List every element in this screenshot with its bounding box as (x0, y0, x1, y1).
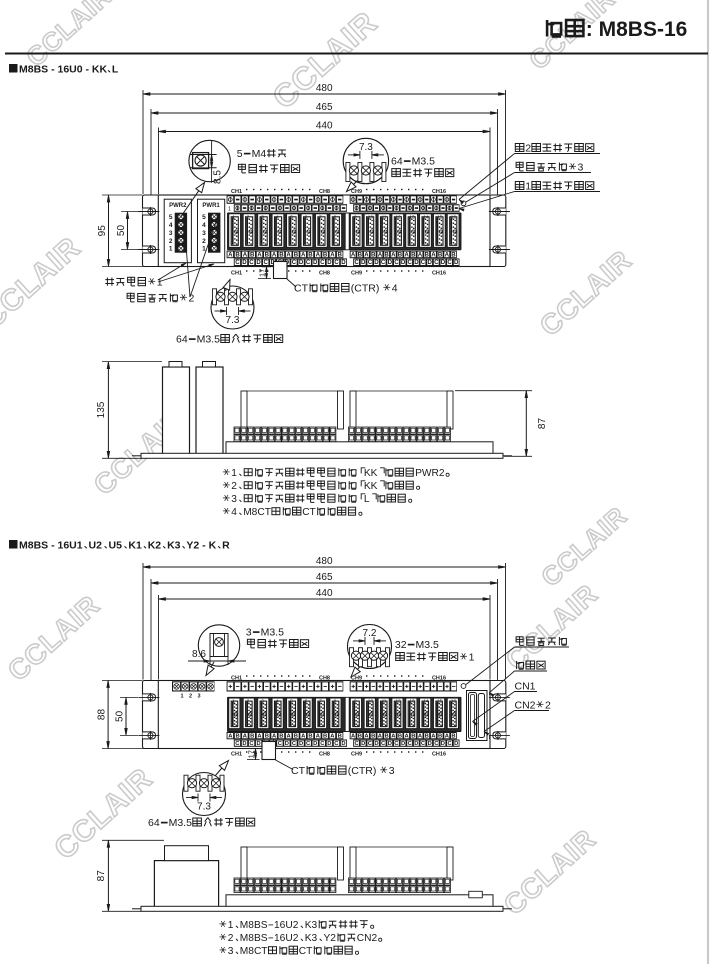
svg-text:D: D (341, 259, 346, 266)
svg-text:A: A (228, 251, 233, 258)
svg-text:CN2: CN2 (357, 933, 378, 944)
svg-text:2: 2 (525, 143, 531, 155)
svg-text:A: A (286, 251, 291, 258)
svg-text:5: 5 (169, 214, 173, 221)
svg-text:B: B (411, 251, 416, 258)
svg-text:M8CT: M8CT (243, 507, 271, 518)
svg-text:Y2 - K: Y2 - K (186, 540, 216, 552)
svg-text:B: B (385, 733, 389, 739)
svg-text:1: 1 (231, 468, 237, 479)
svg-text:D: D (327, 259, 332, 266)
svg-text:C: C (447, 259, 452, 266)
svg-text:M8BS: M8BS (240, 920, 268, 931)
svg-text:L: L (364, 494, 370, 505)
svg-text:PWR1: PWR1 (202, 203, 220, 209)
svg-text:3: 3 (261, 214, 264, 219)
svg-text:M3.5: M3.5 (412, 156, 436, 168)
svg-text:480: 480 (316, 556, 333, 567)
svg-text:2: 2 (247, 699, 250, 704)
svg-text:2: 2 (169, 238, 173, 245)
svg-text:CH16: CH16 (432, 752, 446, 758)
svg-text:D: D (242, 259, 247, 266)
svg-text:A: A (316, 251, 321, 258)
svg-text:K1: K1 (128, 540, 142, 552)
svg-text:15: 15 (437, 214, 443, 219)
svg-text:CH1: CH1 (231, 752, 242, 758)
svg-text:C: C (394, 259, 399, 266)
svg-text:D: D (361, 741, 365, 747)
svg-text:2: 2 (202, 238, 206, 245)
svg-text:B: B (250, 251, 255, 258)
svg-text:13: 13 (409, 214, 415, 219)
svg-text:C: C (235, 259, 240, 266)
svg-text:440: 440 (316, 588, 333, 599)
svg-text:3: 3 (202, 230, 206, 237)
svg-text:C: C (263, 259, 268, 266)
svg-text:1: 1 (525, 181, 531, 193)
svg-text:A: A (301, 251, 306, 258)
svg-text:9: 9 (354, 214, 357, 219)
svg-text:KK: KK (364, 468, 378, 479)
svg-text:B: B (265, 251, 270, 258)
svg-text:D: D (414, 259, 419, 266)
svg-text:M8BS - 16U0 - KK: M8BS - 16U0 - KK (19, 64, 108, 76)
svg-text:B: B (438, 251, 443, 258)
svg-text:A: A (378, 251, 383, 258)
svg-text:K2: K2 (148, 540, 162, 552)
svg-text:D: D (427, 259, 432, 266)
svg-text:M8BS: M8BS (240, 933, 268, 944)
svg-text:3: 3 (197, 694, 200, 700)
svg-text:A: A (272, 251, 277, 258)
svg-text:PWR2: PWR2 (415, 468, 445, 479)
svg-text:15: 15 (437, 699, 443, 704)
svg-text:8.5: 8.5 (213, 170, 224, 184)
svg-text:1: 1 (180, 694, 183, 700)
svg-text:A: A (418, 251, 423, 258)
svg-text:135: 135 (96, 401, 107, 418)
svg-text:CN2: CN2 (515, 700, 536, 712)
svg-text:CH1: CH1 (231, 189, 242, 195)
svg-text:C: C (320, 259, 325, 266)
svg-text:7.3: 7.3 (359, 142, 373, 153)
svg-text:D: D (313, 741, 317, 747)
svg-text:C: C (421, 259, 426, 266)
svg-text:D: D (401, 741, 405, 747)
svg-text:A: A (404, 251, 409, 258)
svg-text:17: 17 (257, 269, 266, 277)
svg-text:465: 465 (316, 102, 333, 113)
svg-text:B: B (323, 733, 327, 739)
svg-text:D: D (257, 741, 261, 747)
svg-text:10: 10 (368, 699, 374, 704)
svg-text:D: D (401, 259, 406, 266)
svg-text:6: 6 (305, 214, 308, 219)
svg-text:M8BS - 16U1: M8BS - 16U1 (19, 540, 83, 552)
svg-text:12: 12 (396, 699, 402, 704)
svg-text:1: 1 (157, 277, 163, 289)
svg-text:17: 17 (246, 750, 255, 758)
svg-text:1: 1 (228, 207, 231, 213)
svg-text:87: 87 (537, 418, 548, 430)
svg-text:7: 7 (319, 214, 322, 219)
svg-text:B: B (236, 733, 240, 739)
svg-text:4: 4 (169, 222, 173, 229)
svg-text:CH8: CH8 (319, 271, 330, 277)
svg-text:2: 2 (189, 694, 192, 700)
svg-text:A: A (364, 251, 369, 258)
svg-text:CT: CT (299, 946, 313, 957)
svg-text:A: A (445, 251, 450, 258)
svg-text:D: D (299, 741, 303, 747)
svg-text:16U2: 16U2 (274, 920, 299, 931)
svg-text:B: B (337, 251, 342, 258)
svg-text:B: B (398, 251, 403, 258)
svg-text:1: 1 (169, 246, 173, 253)
svg-text:C: C (334, 259, 339, 266)
svg-text:M3.5: M3.5 (169, 817, 193, 829)
svg-text:2: 2 (247, 214, 250, 219)
svg-text:CT: CT (302, 507, 316, 518)
svg-text:4: 4 (276, 699, 279, 704)
svg-text:B: B (451, 733, 455, 739)
svg-text:D: D (361, 259, 366, 266)
svg-text:3: 3 (389, 765, 395, 777)
svg-text:7.3: 7.3 (197, 802, 211, 813)
svg-text:B: B (279, 251, 284, 258)
svg-text:D: D (299, 259, 304, 266)
svg-text:5: 5 (290, 699, 293, 704)
svg-text:A: A (330, 251, 335, 258)
svg-text:D: D (441, 741, 445, 747)
svg-text:CH16: CH16 (432, 271, 446, 277)
svg-text:A: A (431, 251, 436, 258)
svg-text:3: 3 (261, 699, 264, 704)
svg-text:8: 8 (334, 699, 337, 704)
svg-text:B: B (323, 251, 328, 258)
svg-text:D: D (441, 259, 446, 266)
svg-text:B: B (371, 733, 375, 739)
svg-text:3: 3 (231, 494, 237, 505)
svg-text:U5: U5 (109, 540, 123, 552)
svg-text:C: C (249, 259, 254, 266)
svg-text:3: 3 (578, 162, 584, 174)
svg-text:1: 1 (469, 652, 475, 664)
svg-text:440: 440 (316, 121, 333, 132)
svg-text:D: D (313, 259, 318, 266)
svg-text:CN1: CN1 (515, 681, 536, 693)
svg-text:16: 16 (451, 214, 457, 219)
svg-text:C: C (292, 259, 297, 266)
svg-text:B: B (411, 733, 415, 739)
svg-text:B: B (425, 733, 429, 739)
svg-text:D: D (374, 741, 378, 747)
svg-text:B: B (308, 733, 312, 739)
svg-text:C: C (381, 259, 386, 266)
svg-text:D: D (388, 741, 392, 747)
svg-text:16: 16 (451, 699, 457, 704)
svg-text:U2: U2 (89, 540, 103, 552)
svg-text:CH9: CH9 (351, 271, 362, 277)
svg-text:D: D (256, 259, 261, 266)
svg-text:B: B (384, 251, 389, 258)
svg-text:A: A (351, 251, 356, 258)
svg-text:B: B (451, 251, 456, 258)
svg-text:R: R (222, 540, 230, 552)
svg-text:D: D (374, 259, 379, 266)
svg-text:64: 64 (176, 334, 188, 346)
svg-text:4: 4 (202, 222, 206, 229)
svg-text:3: 3 (228, 946, 234, 957)
svg-text:M8CT: M8CT (240, 946, 268, 957)
svg-text:M3.5: M3.5 (261, 627, 285, 639)
svg-text:480: 480 (316, 83, 333, 94)
svg-text:K3: K3 (305, 920, 318, 931)
svg-text:CT: CT (291, 765, 306, 777)
svg-text:B: B (279, 733, 283, 739)
svg-text:B: B (338, 733, 342, 739)
svg-text:50: 50 (116, 225, 127, 237)
svg-text:8: 8 (334, 214, 337, 219)
svg-text:3: 3 (246, 627, 252, 639)
svg-text:CH9: CH9 (351, 752, 362, 758)
svg-text:2: 2 (228, 933, 234, 944)
svg-text:B: B (235, 251, 240, 258)
svg-text:A: A (243, 251, 248, 258)
svg-text:B: B (358, 251, 363, 258)
svg-text:2: 2 (545, 700, 551, 712)
svg-text:B: B (294, 733, 298, 739)
svg-text:D: D (428, 741, 432, 747)
svg-text:14: 14 (423, 214, 429, 219)
svg-text:B: B (265, 733, 269, 739)
svg-text:7.3: 7.3 (226, 315, 240, 326)
svg-text:32: 32 (395, 639, 407, 651)
svg-text:5: 5 (290, 214, 293, 219)
svg-text:4: 4 (231, 507, 237, 518)
svg-text:CT: CT (294, 283, 309, 295)
svg-text:88: 88 (97, 709, 108, 721)
svg-text:1: 1 (228, 920, 234, 931)
svg-text:7: 7 (319, 699, 322, 704)
svg-text:(CTR): (CTR) (351, 283, 380, 295)
svg-text:K3: K3 (305, 933, 318, 944)
svg-text:CH16: CH16 (432, 189, 446, 195)
svg-text:11: 11 (382, 699, 387, 704)
svg-text:8.6: 8.6 (192, 649, 206, 660)
svg-text:: M8BS-16: : M8BS-16 (586, 18, 688, 41)
svg-text:2: 2 (231, 481, 237, 492)
svg-text:9: 9 (354, 699, 357, 704)
svg-text:465: 465 (316, 572, 333, 583)
svg-text:4: 4 (392, 283, 398, 295)
svg-text:C: C (354, 259, 359, 266)
svg-text:10: 10 (368, 214, 374, 219)
svg-text:D: D (327, 741, 331, 747)
svg-text:A: A (391, 251, 396, 258)
svg-text:Y2: Y2 (324, 933, 337, 944)
svg-text:D: D (414, 741, 418, 747)
svg-text:D: D (341, 741, 345, 747)
svg-text:M3.5: M3.5 (197, 334, 221, 346)
svg-text:KK: KK (364, 481, 378, 492)
svg-text:1: 1 (232, 699, 235, 704)
svg-text:B: B (438, 733, 442, 739)
svg-text:14: 14 (423, 699, 429, 704)
svg-text:M4: M4 (252, 148, 267, 160)
svg-text:4: 4 (276, 214, 279, 219)
svg-text:CH1: CH1 (231, 271, 242, 277)
svg-text:B: B (250, 733, 254, 739)
svg-text:1: 1 (232, 214, 235, 219)
svg-text:6: 6 (305, 699, 308, 704)
svg-text:(CTR): (CTR) (348, 765, 377, 777)
svg-text:CH8: CH8 (319, 676, 330, 682)
svg-text:D: D (388, 259, 393, 266)
svg-text:B: B (358, 733, 362, 739)
svg-text:12: 12 (396, 214, 402, 219)
svg-text:C: C (407, 259, 412, 266)
svg-text:CH8: CH8 (319, 752, 330, 758)
svg-text:5: 5 (237, 148, 243, 160)
svg-text:B: B (424, 251, 429, 258)
svg-text:B: B (371, 251, 376, 258)
svg-text:C: C (434, 259, 439, 266)
svg-text:C: C (306, 259, 311, 266)
svg-text:D: D (454, 259, 459, 266)
svg-text:13: 13 (409, 699, 415, 704)
svg-text:M3.5: M3.5 (416, 639, 440, 651)
svg-text:D: D (242, 741, 246, 747)
svg-text:16U2: 16U2 (274, 933, 299, 944)
svg-text:B: B (398, 733, 402, 739)
svg-text:PWR2: PWR2 (169, 203, 187, 209)
svg-text:64: 64 (391, 156, 403, 168)
svg-text:B: B (294, 251, 299, 258)
svg-text:C: C (368, 259, 373, 266)
svg-text:11: 11 (382, 214, 387, 219)
svg-text:CH8: CH8 (319, 189, 330, 195)
svg-text:L: L (112, 64, 119, 76)
svg-text:D: D (285, 741, 289, 747)
svg-text:A: A (257, 251, 262, 258)
svg-text:50: 50 (115, 710, 126, 722)
svg-text:CH9: CH9 (351, 189, 362, 195)
svg-text:B: B (308, 251, 313, 258)
svg-text:CH1: CH1 (231, 676, 242, 682)
svg-text:D: D (454, 741, 458, 747)
svg-text:K3: K3 (167, 540, 181, 552)
svg-text:64: 64 (148, 817, 160, 829)
svg-text:87: 87 (96, 870, 107, 882)
svg-text:CH16: CH16 (432, 676, 446, 682)
svg-text:95: 95 (97, 225, 108, 237)
svg-text:5: 5 (202, 214, 206, 221)
svg-text:3: 3 (169, 230, 173, 237)
